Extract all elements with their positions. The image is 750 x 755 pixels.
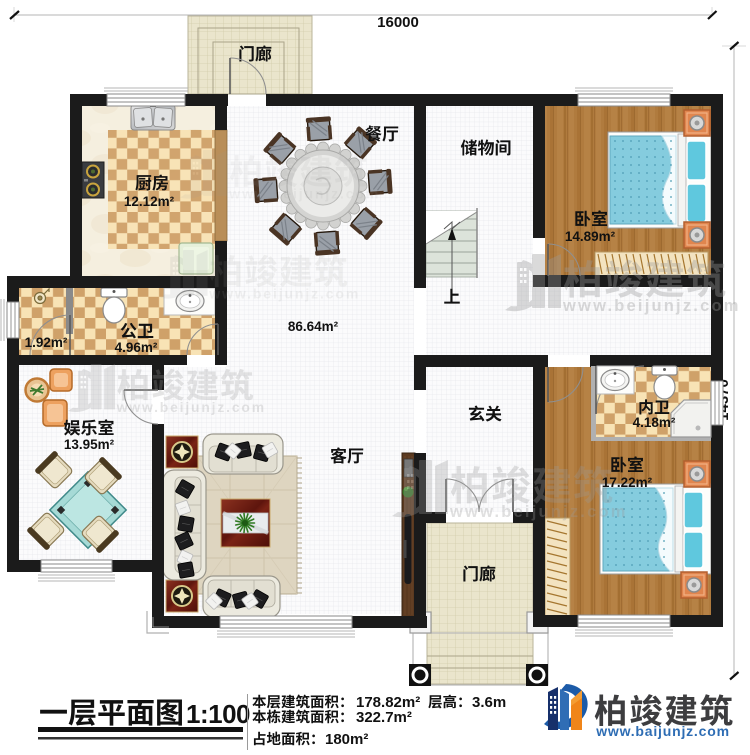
svg-text:www.beijunjz.com: www.beijunjz.com <box>116 399 266 415</box>
svg-text:4.18m²: 4.18m² <box>633 415 676 430</box>
svg-text:12.12m²: 12.12m² <box>124 194 175 209</box>
svg-text:www.baijunjz.com: www.baijunjz.com <box>595 723 730 739</box>
svg-text:1:100: 1:100 <box>186 699 250 729</box>
svg-text:322.7m²: 322.7m² <box>356 709 412 726</box>
svg-text:14.89m²: 14.89m² <box>565 229 616 244</box>
svg-text:www.beijunjz.com: www.beijunjz.com <box>562 297 741 315</box>
svg-text:180m²: 180m² <box>325 731 368 748</box>
svg-text:16000: 16000 <box>377 14 419 31</box>
svg-text:3.6m: 3.6m <box>472 694 506 711</box>
svg-text:13.95m²: 13.95m² <box>64 437 115 452</box>
svg-text:86.64m²: 86.64m² <box>288 319 339 334</box>
svg-text:www.beijunjz.com: www.beijunjz.com <box>449 503 628 521</box>
svg-text:www.beijunjz.com: www.beijunjz.com <box>228 185 380 201</box>
svg-text:4.96m²: 4.96m² <box>115 340 158 355</box>
svg-text:17.22m²: 17.22m² <box>602 475 653 490</box>
svg-text:1.92m²: 1.92m² <box>25 335 68 350</box>
svg-text:www.beijunjz.com: www.beijunjz.com <box>208 285 360 301</box>
